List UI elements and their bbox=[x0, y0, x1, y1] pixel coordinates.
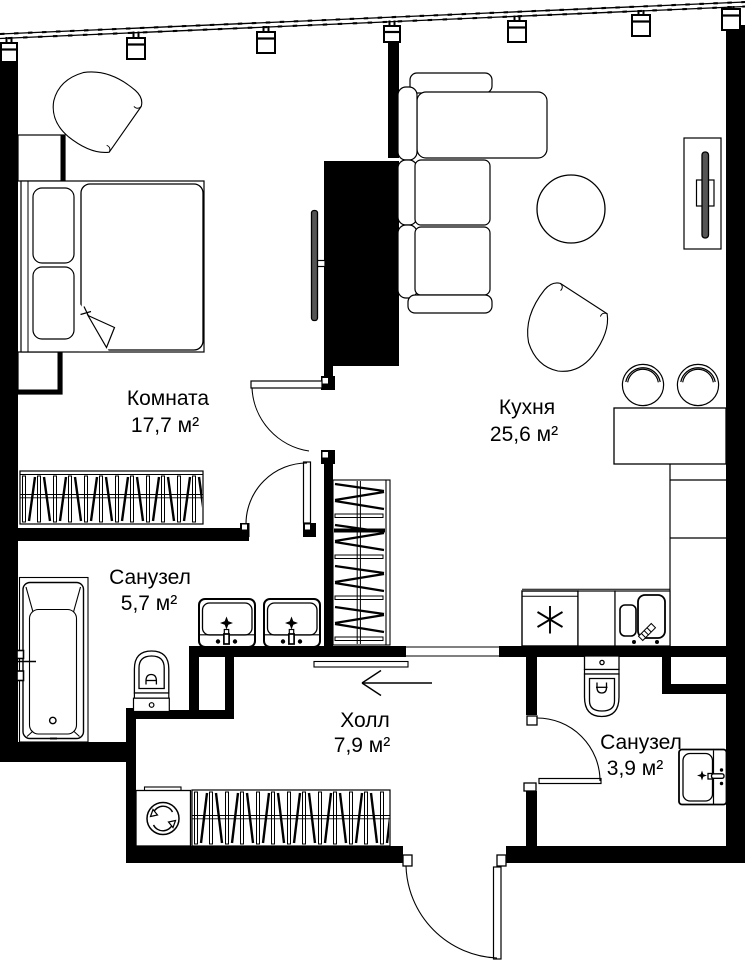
svg-text:Санузел: Санузел bbox=[109, 566, 191, 589]
svg-text:Комната: Комната bbox=[127, 387, 210, 410]
svg-text:17,7 м²: 17,7 м² bbox=[131, 414, 199, 437]
svg-text:Санузел: Санузел bbox=[600, 731, 682, 754]
svg-text:7,9 м²: 7,9 м² bbox=[334, 734, 390, 757]
svg-text:3,9 м²: 3,9 м² bbox=[607, 757, 663, 780]
svg-text:5,7 м²: 5,7 м² bbox=[121, 592, 177, 615]
svg-text:25,6 м²: 25,6 м² bbox=[490, 423, 558, 446]
svg-text:Кухня: Кухня bbox=[499, 396, 555, 419]
svg-text:Холл: Холл bbox=[340, 709, 390, 732]
